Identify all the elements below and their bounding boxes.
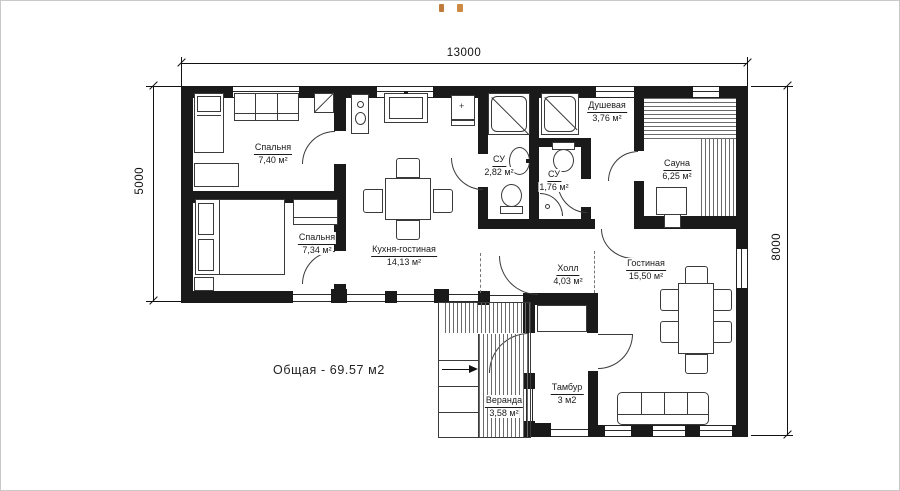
wall-post xyxy=(434,289,449,303)
room-name: Сауна xyxy=(663,158,691,171)
room-label-bedroom1: Спальня 7,40 м² xyxy=(254,142,292,166)
window xyxy=(700,425,732,437)
room-label-sauna: Сауна 6,25 м² xyxy=(661,158,692,182)
window xyxy=(693,86,719,98)
stairs-divider xyxy=(478,334,479,437)
room-name: СУ xyxy=(492,154,506,167)
room-area: 6,25 м² xyxy=(661,171,692,181)
door-arc-sauna xyxy=(608,151,638,181)
kitchen-sink-basin xyxy=(389,97,423,119)
chair-icon xyxy=(660,289,679,311)
sauna-bench-hatch xyxy=(644,98,736,139)
stair-step xyxy=(439,386,478,387)
room-label-veranda: Веранда 3,58 м² xyxy=(485,395,523,419)
door-leaf xyxy=(598,334,633,335)
stair-step xyxy=(439,412,478,413)
tap-icon xyxy=(526,159,532,163)
total-area-label: Общая - 69.57 м2 xyxy=(273,363,385,377)
sauna-bench-icon xyxy=(656,187,687,215)
sauna-bench-hatch xyxy=(701,139,736,216)
hall-boundary-dashed xyxy=(594,251,596,293)
chair-icon xyxy=(685,266,708,284)
dining-table-icon xyxy=(385,178,431,220)
room-area: 14,13 м² xyxy=(386,257,422,267)
wall-post xyxy=(385,291,397,303)
chair-icon xyxy=(713,289,732,311)
room-name: Веранда xyxy=(485,395,523,408)
room-name: Спальня xyxy=(298,232,336,245)
chair-icon xyxy=(660,321,679,343)
wall-sauna-bottom xyxy=(634,216,748,229)
room-area: 7,34 м² xyxy=(301,245,332,255)
wall-segment xyxy=(478,187,488,219)
room-name: Гостиная xyxy=(626,258,666,271)
sofa-cushion-line xyxy=(255,93,256,121)
window xyxy=(736,249,748,288)
door-arc-shower-living xyxy=(601,229,634,259)
room-label-bedroom2: Спальня 7,34 м² xyxy=(298,232,336,256)
wall-bathroom-bottom xyxy=(478,219,595,229)
sofa-seat-line xyxy=(618,414,708,415)
sofa-cushion-line xyxy=(664,393,665,414)
sofa-icon xyxy=(617,392,709,425)
tap-icon xyxy=(513,89,519,93)
stair-step xyxy=(439,360,478,361)
corner-sink-icon xyxy=(540,193,563,216)
room-label-shower: Душевая 3,76 м² xyxy=(587,100,627,124)
sink-drain xyxy=(545,204,550,209)
dimension-line-left xyxy=(153,86,154,301)
pillow-icon xyxy=(198,203,214,235)
wall-segment xyxy=(334,98,346,131)
dimension-line-top xyxy=(181,63,747,64)
tap-icon xyxy=(497,89,503,93)
sofa-cushion-line xyxy=(277,93,278,121)
wall-tambour-right xyxy=(588,371,598,437)
wall-sauna-left xyxy=(634,181,644,216)
room-label-hall: Холл 4,03 м² xyxy=(552,263,583,287)
floor-plan-canvas: 13000 5000 8000 xyxy=(0,0,900,491)
wall-segment xyxy=(581,147,591,179)
window xyxy=(596,86,634,98)
wall-segment xyxy=(334,284,346,303)
nightstand-icon xyxy=(194,277,214,291)
room-area: 7,40 м² xyxy=(257,155,288,165)
pillow-icon xyxy=(197,96,221,112)
chair-icon xyxy=(396,158,420,178)
burner-icon xyxy=(357,101,364,108)
room-area: 3,76 м² xyxy=(591,113,622,123)
blanket-line xyxy=(197,115,221,116)
door-arc-tambour-living xyxy=(598,334,633,369)
room-label-tambour: Тамбур 3 м2 xyxy=(551,382,584,406)
artifact-mark xyxy=(457,4,463,12)
sofa-icon xyxy=(234,93,299,121)
wall-segment xyxy=(334,164,346,203)
dimension-label-left: 5000 xyxy=(134,167,146,195)
tap-icon xyxy=(549,89,555,93)
room-name: Спальня xyxy=(254,142,292,155)
room-area: 1,76 м² xyxy=(538,182,569,192)
veranda-deck-hatch xyxy=(445,303,530,333)
window xyxy=(605,425,631,437)
burner-icon xyxy=(355,112,366,125)
dimension-label-right: 8000 xyxy=(771,233,783,261)
room-area: 4,03 м² xyxy=(552,276,583,286)
chair-icon xyxy=(685,354,708,374)
sofa-seat-line xyxy=(234,113,299,114)
pillow-icon xyxy=(198,239,214,271)
dresser-icon xyxy=(194,163,239,187)
window xyxy=(653,425,685,437)
wall-bottom-left xyxy=(181,291,293,303)
wardrobe-line xyxy=(293,217,338,218)
room-name: Кухня-гостиная xyxy=(371,244,437,257)
room-area: 3 м2 xyxy=(557,395,578,405)
tap-icon xyxy=(404,91,408,94)
door-arc-hall-kitchen xyxy=(499,256,538,295)
room-area: 15,50 м² xyxy=(628,271,664,281)
room-label-wc1: СУ 2,82 м² xyxy=(483,154,514,178)
entry-arrow-icon xyxy=(469,365,478,373)
veranda-deck-hatch xyxy=(479,334,530,437)
room-name: СУ xyxy=(547,169,561,182)
counter-icon xyxy=(451,120,475,126)
wall-sauna-left xyxy=(634,98,644,151)
room-label-living: Гостиная 15,50 м² xyxy=(626,258,666,282)
chair-icon xyxy=(713,321,732,343)
tap-icon xyxy=(565,89,571,93)
blanket-line xyxy=(219,199,220,275)
sofa-cushion-line xyxy=(641,393,642,414)
toilet-tank xyxy=(500,206,523,214)
wardrobe-icon xyxy=(293,199,338,225)
wall-post xyxy=(587,293,598,333)
room-area: 3,58 м² xyxy=(488,408,519,418)
wall-segment xyxy=(478,98,488,154)
room-name: Тамбур xyxy=(551,382,584,395)
dining-table-icon xyxy=(678,283,714,354)
dimension-label-top: 13000 xyxy=(434,47,494,59)
room-name: Холл xyxy=(556,263,579,276)
chair-icon xyxy=(396,220,420,240)
room-label-wc2: СУ 1,76 м² xyxy=(538,169,569,193)
sofa-cushion-line xyxy=(687,393,688,414)
door-arc-bedroom1 xyxy=(302,131,335,164)
artifact-mark xyxy=(439,4,444,12)
dimension-line-right xyxy=(787,86,788,435)
cabinet-plus-mark: + xyxy=(459,101,464,111)
closet-icon xyxy=(537,305,587,332)
room-name: Душевая xyxy=(587,100,627,113)
entry-arrow-shaft xyxy=(442,369,470,370)
chair-icon xyxy=(433,189,453,213)
hall-boundary-dashed xyxy=(480,253,482,293)
chair-icon xyxy=(363,189,383,213)
toilet-icon xyxy=(501,184,522,207)
door-arc-wc1 xyxy=(451,158,483,190)
sauna-heater-icon xyxy=(664,214,681,228)
entry-door-band xyxy=(551,429,588,437)
room-area: 2,82 м² xyxy=(483,167,514,177)
room-label-kitchen: Кухня-гостиная 14,13 м² xyxy=(371,244,437,268)
